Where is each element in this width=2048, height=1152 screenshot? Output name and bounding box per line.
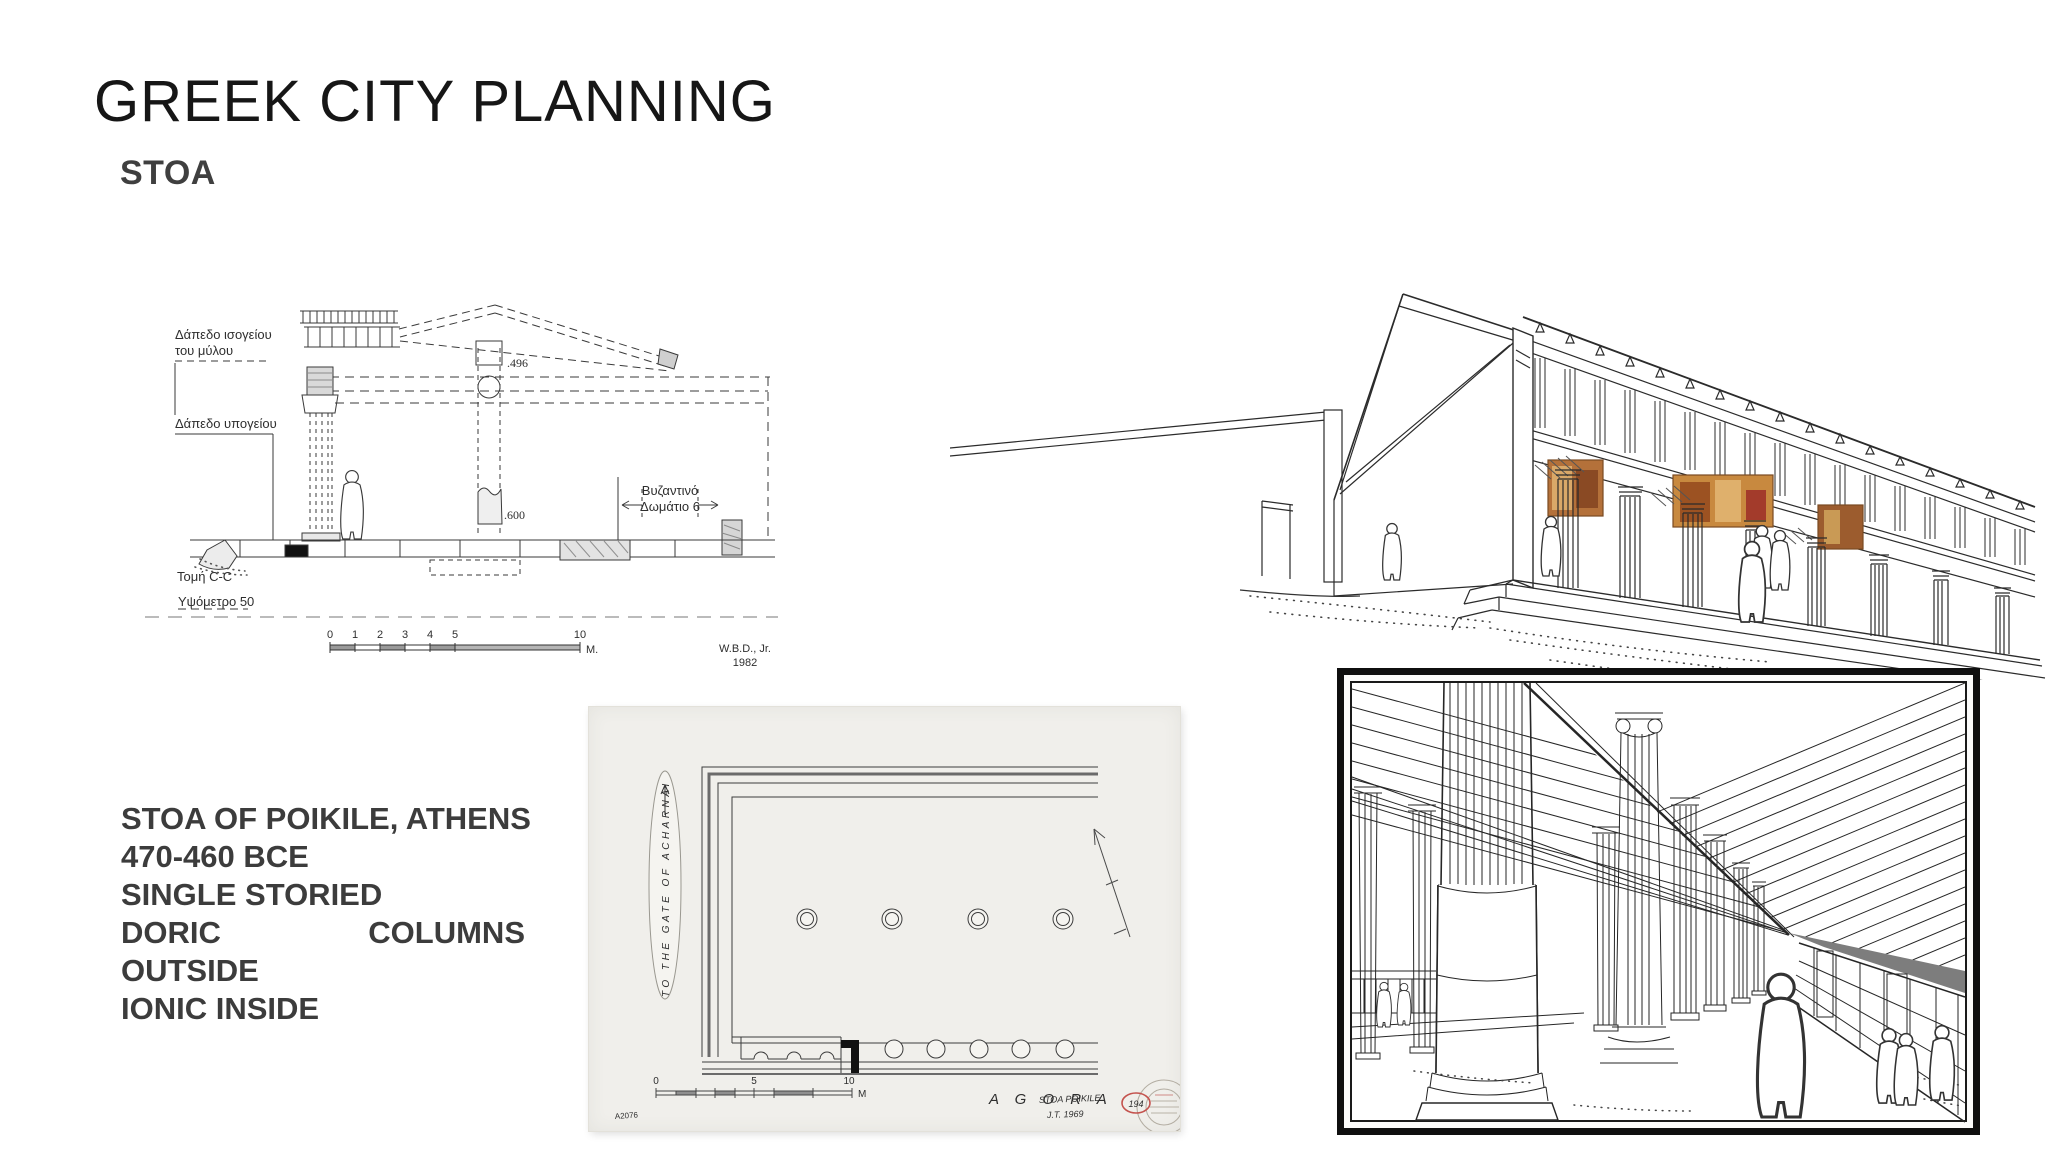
painted-panels xyxy=(1548,460,1863,549)
info-line-4-left: DORIC xyxy=(121,914,221,952)
scale-tick-4: 4 xyxy=(427,629,433,641)
scale-unit: M. xyxy=(586,644,598,656)
corner-pier xyxy=(1513,328,1533,588)
figure-by-door xyxy=(1383,523,1402,580)
credit-line2: 1982 xyxy=(733,657,757,669)
interior-ionic-columns xyxy=(797,909,1073,929)
figure-pair-b xyxy=(1770,531,1790,591)
label-dim-496: .496 xyxy=(507,356,528,370)
section-heading-stoa: STOA xyxy=(120,154,216,193)
label-byzantine-2: Δωμάτιο 6 xyxy=(640,499,700,514)
scale-tick-3: 3 xyxy=(402,629,408,641)
label-byzantine-1: Βυζαντινό xyxy=(642,483,698,498)
plan-black-corner-mark xyxy=(841,1040,859,1073)
plan-scale-0: 0 xyxy=(653,1076,659,1087)
page-title: GREEK CITY PLANNING xyxy=(94,68,776,135)
info-line-1: STOA OF POIKILE, ATHENS xyxy=(121,800,525,838)
info-line-6: IONIC INSIDE xyxy=(121,990,525,1028)
floor-plan-drawing: TO THE GATE OF ACHARNAI 0 5 10 M A G O R… xyxy=(589,707,1180,1131)
scale-tick-0: 0 xyxy=(327,629,333,641)
scale-tick-1: 1 xyxy=(352,629,358,641)
label-section-cut: Τομή C-C xyxy=(177,569,232,584)
plan-scale-10: 10 xyxy=(843,1076,855,1087)
label-elevation: Υψόμετρο 50 xyxy=(178,594,254,609)
figure-in-section xyxy=(341,471,364,539)
stoa-interior-drawing xyxy=(1344,675,1973,1128)
label-ground-floor-2: του μύλου xyxy=(175,343,233,358)
plan-scale-5: 5 xyxy=(751,1076,757,1087)
stoa-exterior-drawing xyxy=(950,160,2048,680)
scale-tick-10: 10 xyxy=(574,629,586,641)
door-frame xyxy=(1262,501,1293,579)
slide: GREEK CITY PLANNING STOA xyxy=(0,0,2048,1152)
north-arrow-icon xyxy=(1094,829,1130,937)
info-line-4: DORIC COLUMNS xyxy=(121,914,525,952)
label-basement: Δάπεδο υπογείου xyxy=(175,416,277,431)
info-line-5: OUTSIDE xyxy=(121,952,525,990)
stoa-cross-section-drawing: Δάπεδο ισογείου του μύλου Δάπεδο υπογείο… xyxy=(130,237,790,675)
label-ground-floor-1: Δάπεδο ισογείου xyxy=(175,327,272,342)
credit-line1: W.B.D., Jr. xyxy=(719,643,771,655)
floor-plan-sheet: TO THE GATE OF ACHARNAI 0 5 10 M A G O R… xyxy=(589,707,1180,1131)
back-wall xyxy=(950,410,1513,596)
pediment xyxy=(1334,294,1523,500)
red-note-2: J.T. 1969 xyxy=(1046,1109,1084,1120)
interior-drawing-frame xyxy=(1337,668,1980,1135)
plan-scale-bar xyxy=(656,1088,852,1098)
info-line-2: 470-460 BCE xyxy=(121,838,525,876)
info-line-4-right: COLUMNS xyxy=(368,914,525,952)
scale-tick-2: 2 xyxy=(377,629,383,641)
red-badge-number: 194 xyxy=(1128,1099,1143,1109)
info-line-3: SINGLE STORIED xyxy=(121,876,525,914)
label-dim-600: .600 xyxy=(504,508,525,522)
scale-tick-5: 5 xyxy=(452,629,458,641)
plan-scale-unit: M xyxy=(858,1089,866,1100)
sheet-number: A2076 xyxy=(615,1110,639,1121)
gate-direction-label: TO THE GATE OF ACHARNAI xyxy=(661,780,672,997)
info-block: STOA OF POIKILE, ATHENS 470-460 BCE SING… xyxy=(121,800,525,1028)
